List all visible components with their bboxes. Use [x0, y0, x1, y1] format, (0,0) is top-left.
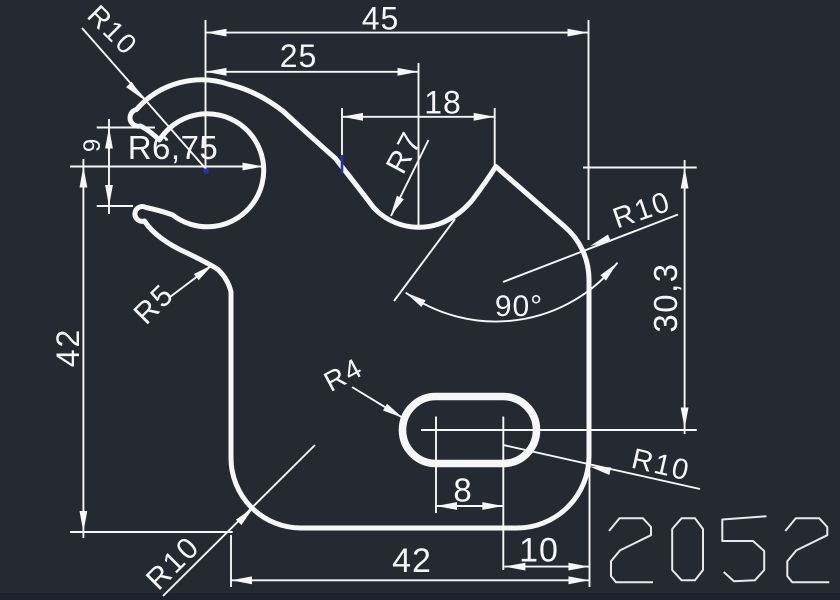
svg-text:10: 10: [519, 532, 559, 570]
svg-text:42: 42: [50, 328, 86, 368]
svg-text:9: 9: [79, 137, 106, 152]
svg-text:18: 18: [424, 85, 462, 121]
svg-text:R6,75: R6,75: [128, 129, 219, 166]
svg-text:30,3: 30,3: [647, 262, 684, 332]
svg-text:8: 8: [453, 472, 473, 509]
svg-text:25: 25: [280, 38, 318, 74]
svg-text:42: 42: [392, 542, 432, 580]
svg-text:45: 45: [362, 1, 400, 37]
svg-text:90°: 90°: [495, 290, 543, 323]
